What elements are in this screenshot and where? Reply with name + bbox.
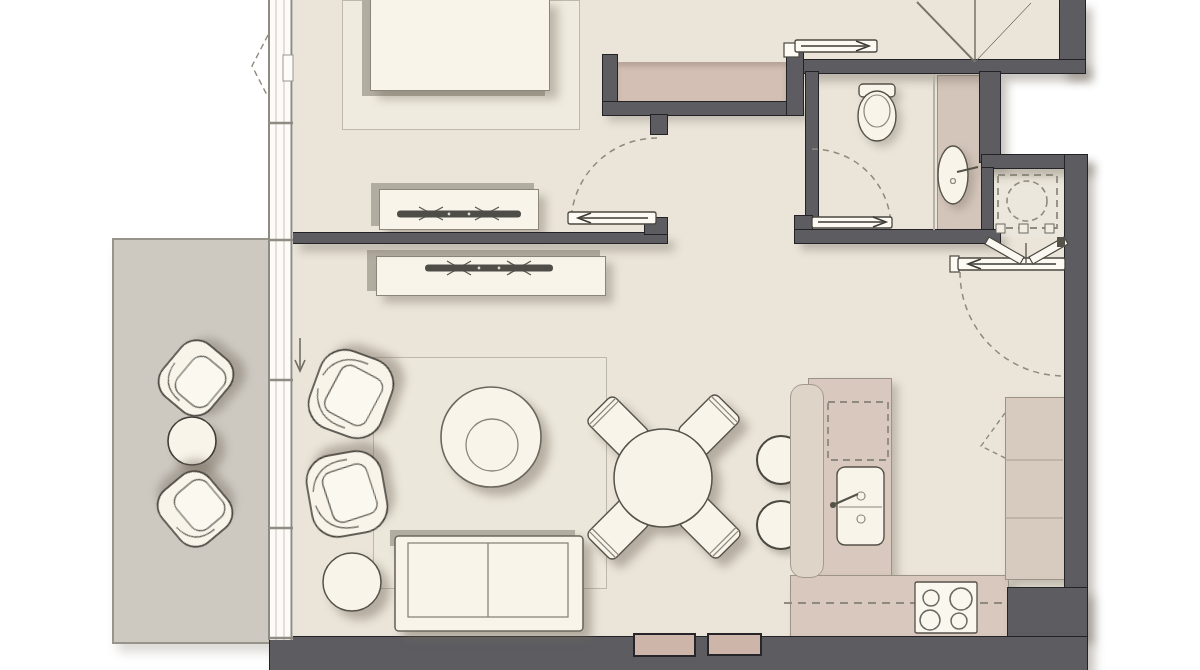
dining-set xyxy=(585,392,742,561)
round-dining-table xyxy=(614,429,712,527)
balcony-side-table xyxy=(168,417,216,465)
cabinet-door-dash-icon xyxy=(981,413,1005,458)
plan-linework xyxy=(0,0,1200,670)
window-wall xyxy=(268,0,293,640)
dishwasher-dashed-box xyxy=(828,402,888,460)
laundry-closet-symbols xyxy=(985,175,1068,264)
bathroom-sink xyxy=(938,146,978,204)
casement-window-dash-icon xyxy=(252,35,268,97)
tv-bedroom-icon xyxy=(397,207,521,220)
pouf xyxy=(323,553,381,611)
kitchen-symbols xyxy=(784,402,1063,633)
cooktop xyxy=(915,582,977,633)
island-sink xyxy=(830,467,884,545)
bathroom-pocket-door xyxy=(812,217,892,228)
door-swing-arcs xyxy=(571,138,1064,376)
tall-cabinet-lines xyxy=(1005,460,1063,518)
bedroom-pocket-door xyxy=(568,212,656,224)
kitchen-hall-pocket-door xyxy=(950,256,1065,272)
bedroom-door-arc xyxy=(571,138,657,224)
round-coffee-table xyxy=(441,387,541,487)
entry-door-lines xyxy=(917,0,1031,62)
floor-plan xyxy=(0,0,1200,670)
balcony-slider-arrow-icon xyxy=(295,338,305,371)
armchair-2 xyxy=(302,447,391,541)
two-seat-sofa xyxy=(390,530,583,631)
balcony-lounge-chair-1 xyxy=(150,332,241,424)
kitchen-door-arc xyxy=(960,272,1064,376)
balcony-lounge-chair-2 xyxy=(149,463,240,555)
washer-dashed-drum xyxy=(1007,181,1047,221)
hall-top-pocket-door xyxy=(784,40,877,57)
bathroom-door-arc xyxy=(812,149,891,228)
armchair-1 xyxy=(301,342,400,445)
tv-living-icon xyxy=(425,261,553,275)
toilet xyxy=(858,84,896,141)
